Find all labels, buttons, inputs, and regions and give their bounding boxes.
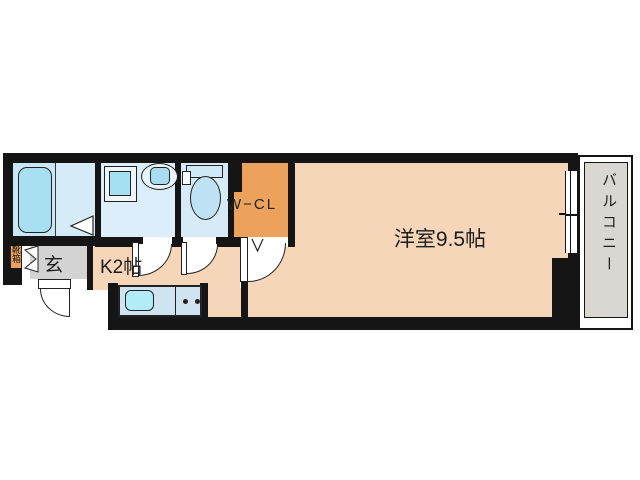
bathroom-area-right: [56, 163, 96, 236]
wall-under-shoebox: [3, 268, 22, 285]
wall-bottom: [108, 317, 578, 330]
closet-area-upper: [242, 163, 288, 193]
counter-divider-line: [175, 287, 176, 315]
sink-bowl-icon: [150, 167, 170, 185]
wall-left-upper: [3, 153, 13, 246]
floorplan: 洋室9.5帖 K2帖 玄 W−CL 靴箱 バルコニー: [0, 0, 640, 480]
bathtub-icon: [18, 167, 52, 233]
window-glass-line: [570, 171, 571, 253]
western-room-label: 洋室9.5帖: [350, 223, 530, 253]
window-latch-outer: [559, 213, 566, 215]
entrance-label: 玄: [44, 250, 63, 277]
shoe-cabinet-label: 靴箱: [10, 245, 22, 263]
wall-room-left: [241, 278, 248, 317]
wall-bath-wash: [95, 163, 101, 237]
kitchen-label: K2帖: [100, 252, 142, 279]
kitchen-passage-area: [208, 288, 241, 317]
toilet-bowl-icon: [190, 176, 221, 220]
washing-machine-drum-icon: [109, 171, 131, 196]
entry-door-leaf: [38, 279, 71, 289]
burner-dot-icon: [183, 299, 188, 304]
room-door-leaf: [240, 237, 248, 282]
wall-closet-right: [288, 163, 295, 238]
pillar-bottom-right: [552, 258, 578, 330]
bathroom-divider-line: [55, 163, 56, 236]
wall-closet-notch: [228, 163, 242, 192]
kitchen-sink-icon: [125, 290, 154, 311]
wall-top: [3, 153, 578, 163]
toilet-door-leaf: [181, 242, 187, 275]
balcony-label: バルコニー: [598, 172, 619, 312]
wall-entrance-kitchen: [87, 246, 93, 290]
entry-door-swing-icon: [40, 289, 70, 317]
burner-dot-icon: [195, 299, 200, 304]
window-latch-tick: [566, 214, 577, 216]
walk-in-closet-label: W−CL: [227, 196, 277, 213]
toilet-paper-holder-icon: [182, 171, 191, 185]
window-symbol: [565, 171, 578, 253]
